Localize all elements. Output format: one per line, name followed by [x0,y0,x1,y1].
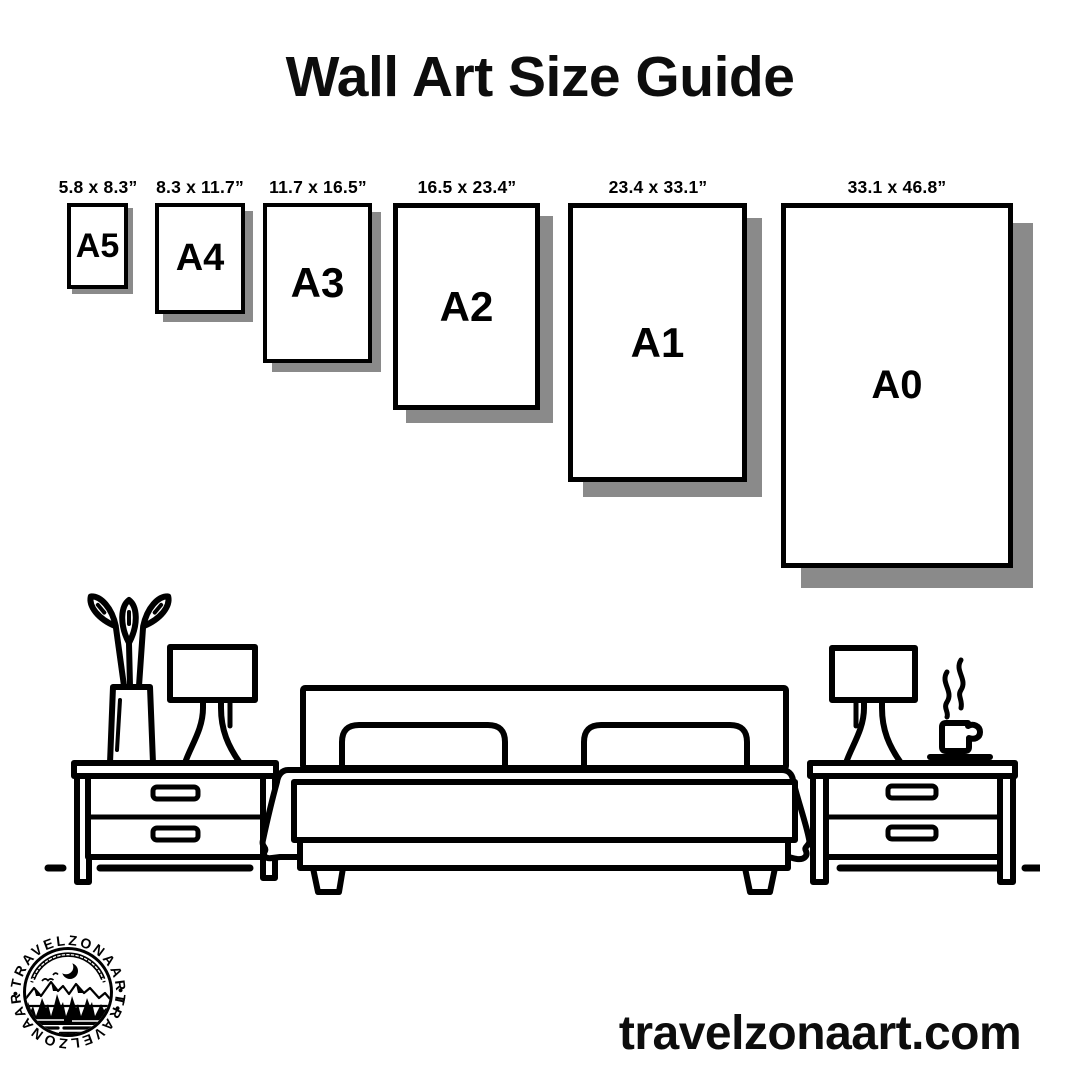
table-lamp-right-icon [832,648,915,763]
plant-vase-icon [86,592,173,763]
size-dimensions-a3: 11.7 x 16.5” [233,177,403,198]
website-url: travelzonaart.com [560,1006,1080,1061]
size-card-a0: A0 [781,203,1013,568]
size-card-a5: A5 [67,203,128,289]
brand-logo-emblem: •TRAVELZONAART• •TRAVELZONAART• [6,930,130,1054]
nightstand-right-icon [810,763,1015,882]
size-label-a0: A0 [871,363,922,408]
size-label-a1: A1 [631,319,685,367]
size-card-a1: A1 [568,203,747,482]
page-title: Wall Art Size Guide [0,44,1080,110]
size-dimensions-a0: 33.1 x 46.8” [812,177,982,198]
size-label-a4: A4 [176,237,225,280]
size-label-a5: A5 [76,227,119,266]
size-label-a2: A2 [440,283,494,331]
bedroom-scene [40,590,1040,902]
size-card-a3: A3 [263,203,372,363]
size-dimensions-a2: 16.5 x 23.4” [382,177,552,198]
double-bed-icon [263,688,810,892]
size-card-a2: A2 [393,203,540,410]
size-card-a4: A4 [155,203,245,314]
table-lamp-left-icon [170,647,255,763]
nightstand-left-icon [74,763,276,882]
size-dimensions-a1: 23.4 x 33.1” [573,177,743,198]
size-label-a3: A3 [291,259,345,307]
coffee-cup-icon [930,660,990,757]
